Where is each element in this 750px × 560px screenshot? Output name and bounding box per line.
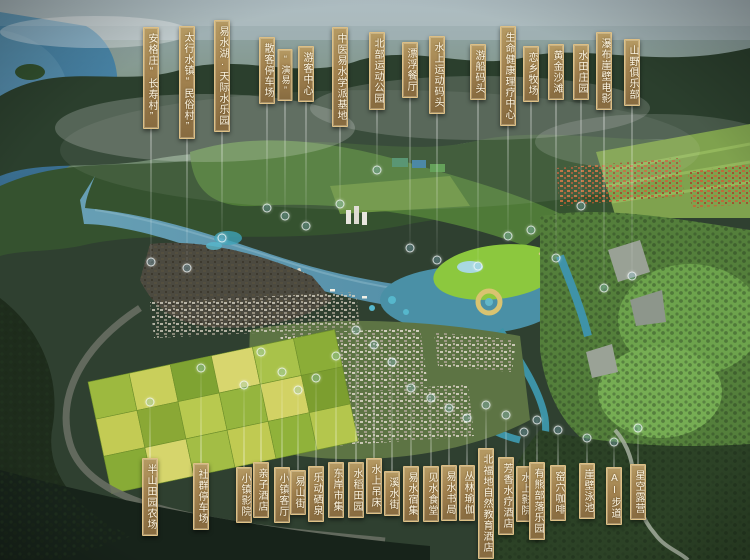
poi-marker-ledong-mineral-spring <box>312 374 321 383</box>
poi-leader-line-aroma-spa-hotel <box>506 415 507 457</box>
poi-label-jungle-yoga: 丛林瑜伽 <box>459 465 475 521</box>
poi-marker-aroma-spa-hotel <box>502 411 511 420</box>
poi-leader-line-stream-street <box>392 362 393 471</box>
poi-label-lianxiang-ranch: 恋乡牧场 <box>523 46 539 102</box>
poi-label-east-bank-market: 东岸市集 <box>328 462 344 518</box>
poi-label-tcm-yishui-school-base: 中医易水学派基地 <box>332 27 348 127</box>
poi-marker-yishui-bookstore <box>445 404 454 413</box>
poi-marker-ai-trail <box>610 438 619 447</box>
poi-label-angezhuang-changshou-village: 安格庄“长寿村” <box>143 27 159 129</box>
poi-label-kiln-cave-cafe: 窑穴咖啡 <box>550 465 566 521</box>
poi-label-water-sports-pier: 水上运动码头 <box>429 36 445 114</box>
poi-marker-paddy-field-manor <box>577 202 586 211</box>
poi-marker-rice-paddy-fields <box>352 326 361 335</box>
poi-leader-line-taihang-water-town-folk-village <box>187 139 188 268</box>
poi-marker-youxiong-tribe-park <box>533 416 542 425</box>
poi-marker-family-hotel <box>257 348 266 357</box>
poi-leader-line-yishui-lodging-cluster <box>411 388 412 466</box>
poi-marker-mountain-wilderness-club <box>628 272 637 281</box>
poi-label-mountain-wilderness-club: 山野俱乐部 <box>624 39 640 106</box>
poi-leader-line-visitor-center <box>306 102 307 226</box>
poi-label-hillside-pastoral-farm: 半山田园农场 <box>142 458 158 536</box>
poi-leader-line-paddy-field-manor <box>581 100 582 206</box>
poi-label-rice-paddy-fields: 水稻田园 <box>348 462 364 518</box>
poi-label-waterfall-cliff-cinema: 瀑布崖壁电影 <box>596 32 612 110</box>
poi-leader-line-visitor-parking-lot <box>267 104 268 208</box>
poi-marker-hillside-pastoral-farm <box>146 398 155 407</box>
poi-leader-line-stargazing-camp <box>638 428 639 464</box>
poi-leader-line-waterfall-cliff-cinema <box>604 110 605 288</box>
poi-leader-line-beifudi-nature-education-hotel <box>486 405 487 448</box>
poi-marker-lianxiang-ranch <box>527 226 536 235</box>
poi-label-paddy-field-manor: 水田庄园 <box>573 44 589 100</box>
poi-label-floating-restaurant: 漂浮餐厅 <box>402 42 418 98</box>
poi-label-jianshui-canteen: 见水食堂 <box>423 466 439 522</box>
poi-leader-line-ledong-mineral-spring <box>316 378 317 466</box>
poi-marker-yishan-street <box>294 386 303 395</box>
poi-label-yishan-street: 易山街 <box>290 470 306 515</box>
poi-label-town-cinema: 小镇影院 <box>236 467 252 523</box>
poi-leader-line-east-bank-market <box>336 356 337 462</box>
poi-marker-water-sports-pier <box>433 256 442 265</box>
poi-leader-line-life-health-therapy-center <box>508 126 509 236</box>
poi-marker-town-living-room <box>278 368 287 377</box>
poi-leader-line-mountain-wilderness-club <box>632 106 633 276</box>
poi-leader-line-jungle-yoga <box>467 418 468 465</box>
poi-leader-line-jianshui-canteen <box>431 398 432 466</box>
poi-leader-line-rice-paddy-fields <box>356 330 357 462</box>
poi-leader-line-community-parking-lot <box>201 368 202 463</box>
poi-marker-water-hammock <box>370 341 379 350</box>
poi-label-yanyi-show: “演易” <box>278 49 293 101</box>
poi-marker-tcm-yishui-school-base <box>336 200 345 209</box>
poi-label-town-living-room: 小镇客厅 <box>274 467 290 523</box>
poi-marker-golden-beach <box>552 254 561 263</box>
poi-marker-visitor-center <box>302 222 311 231</box>
poi-leader-line-hillside-pastoral-farm <box>150 402 151 458</box>
poi-label-ledong-mineral-spring: 乐动硒泉 <box>308 466 324 522</box>
poi-marker-cruise-boat-pier <box>474 262 483 271</box>
poi-marker-yishui-lake-tianji-waterpark <box>218 234 227 243</box>
poi-label-yishui-bookstore: 易水书局 <box>441 465 457 521</box>
poi-marker-community-parking-lot <box>197 364 206 373</box>
poi-leader-line-kiln-cave-cafe <box>558 430 559 465</box>
poi-label-water-hammock: 水上吊床 <box>366 458 382 514</box>
poi-marker-stream-street <box>388 358 397 367</box>
poi-leader-line-water-hammock <box>374 345 375 458</box>
poi-leader-line-yishui-lake-tianji-waterpark <box>222 132 223 238</box>
poi-leader-line-floating-restaurant <box>410 98 411 248</box>
poi-leader-line-yishui-bookstore <box>449 408 450 465</box>
poi-label-visitor-center: 游客中心 <box>298 46 314 102</box>
poi-marker-angezhuang-changshou-village <box>147 258 156 267</box>
poi-leader-line-lianxiang-ranch <box>531 102 532 230</box>
poi-marker-waterfall-cliff-cinema <box>600 284 609 293</box>
poi-marker-jianshui-canteen <box>427 394 436 403</box>
poi-label-yishui-lake-tianji-waterpark: 易水湖·天际水乐园 <box>214 20 230 132</box>
poi-leader-line-yanyi-show <box>285 101 286 216</box>
poi-marker-stargazing-camp <box>634 424 643 433</box>
poi-marker-visitor-parking-lot <box>263 204 272 213</box>
poi-label-yishui-lodging-cluster: 易水宿集 <box>403 466 419 522</box>
poi-marker-taihang-water-town-folk-village <box>183 264 192 273</box>
poi-marker-north-sports-park <box>373 166 382 175</box>
poi-label-cliff-swimming-pool: 崖壁泳池 <box>579 463 595 519</box>
poi-label-north-sports-park: 北部运动公园 <box>369 32 385 110</box>
poi-marker-beifudi-nature-education-hotel <box>482 401 491 410</box>
poi-marker-water-cinema <box>520 428 529 437</box>
poi-label-visitor-parking-lot: 散客停车场 <box>259 37 275 104</box>
poi-marker-yanyi-show <box>281 212 290 221</box>
masterplan-aerial-view: 安格庄“长寿村”太行水镇“民俗村”易水湖·天际水乐园散客停车场“演易”游客中心中… <box>0 0 750 560</box>
poi-label-golden-beach: 黄金沙滩 <box>548 44 564 100</box>
poi-leader-line-north-sports-park <box>377 110 378 170</box>
poi-leader-line-angezhuang-changshou-village <box>151 129 152 262</box>
poi-marker-kiln-cave-cafe <box>554 426 563 435</box>
poi-marker-cliff-swimming-pool <box>583 434 592 443</box>
poi-label-aroma-spa-hotel: 芳香水疗酒店 <box>498 457 514 535</box>
poi-label-family-hotel: 亲子酒店 <box>253 462 269 518</box>
poi-leader-line-tcm-yishui-school-base <box>340 127 341 204</box>
poi-marker-east-bank-market <box>332 352 341 361</box>
poi-marker-town-cinema <box>240 381 249 390</box>
poi-marker-yishui-lodging-cluster <box>407 384 416 393</box>
poi-marker-life-health-therapy-center <box>504 232 513 241</box>
poi-label-life-health-therapy-center: 生命健康理疗中心 <box>500 26 516 126</box>
poi-label-cruise-boat-pier: 游船码头 <box>470 44 486 100</box>
poi-leader-line-town-cinema <box>244 385 245 467</box>
poi-leader-line-water-cinema <box>524 432 525 466</box>
poi-label-youxiong-tribe-park: 有熊部落乐园 <box>529 462 545 540</box>
poi-marker-floating-restaurant <box>406 244 415 253</box>
poi-label-ai-trail: AI步道 <box>606 467 622 525</box>
poi-leader-line-family-hotel <box>261 352 262 462</box>
poi-leader-line-golden-beach <box>556 100 557 258</box>
poi-leader-line-cruise-boat-pier <box>478 100 479 266</box>
poi-leader-line-yishan-street <box>298 390 299 470</box>
poi-marker-jungle-yoga <box>463 414 472 423</box>
poi-label-stream-street: 溪水街 <box>384 471 400 516</box>
poi-leader-line-town-living-room <box>282 372 283 467</box>
poi-leader-line-water-sports-pier <box>437 114 438 260</box>
poi-label-beifudi-nature-education-hotel: 北福地自然教育酒店 <box>478 448 494 559</box>
poi-leader-line-youxiong-tribe-park <box>537 420 538 462</box>
poi-label-stargazing-camp: 星空露营 <box>630 464 646 520</box>
poi-label-community-parking-lot: 社群停车场 <box>193 463 209 530</box>
poi-label-taihang-water-town-folk-village: 太行水镇“民俗村” <box>179 26 195 139</box>
